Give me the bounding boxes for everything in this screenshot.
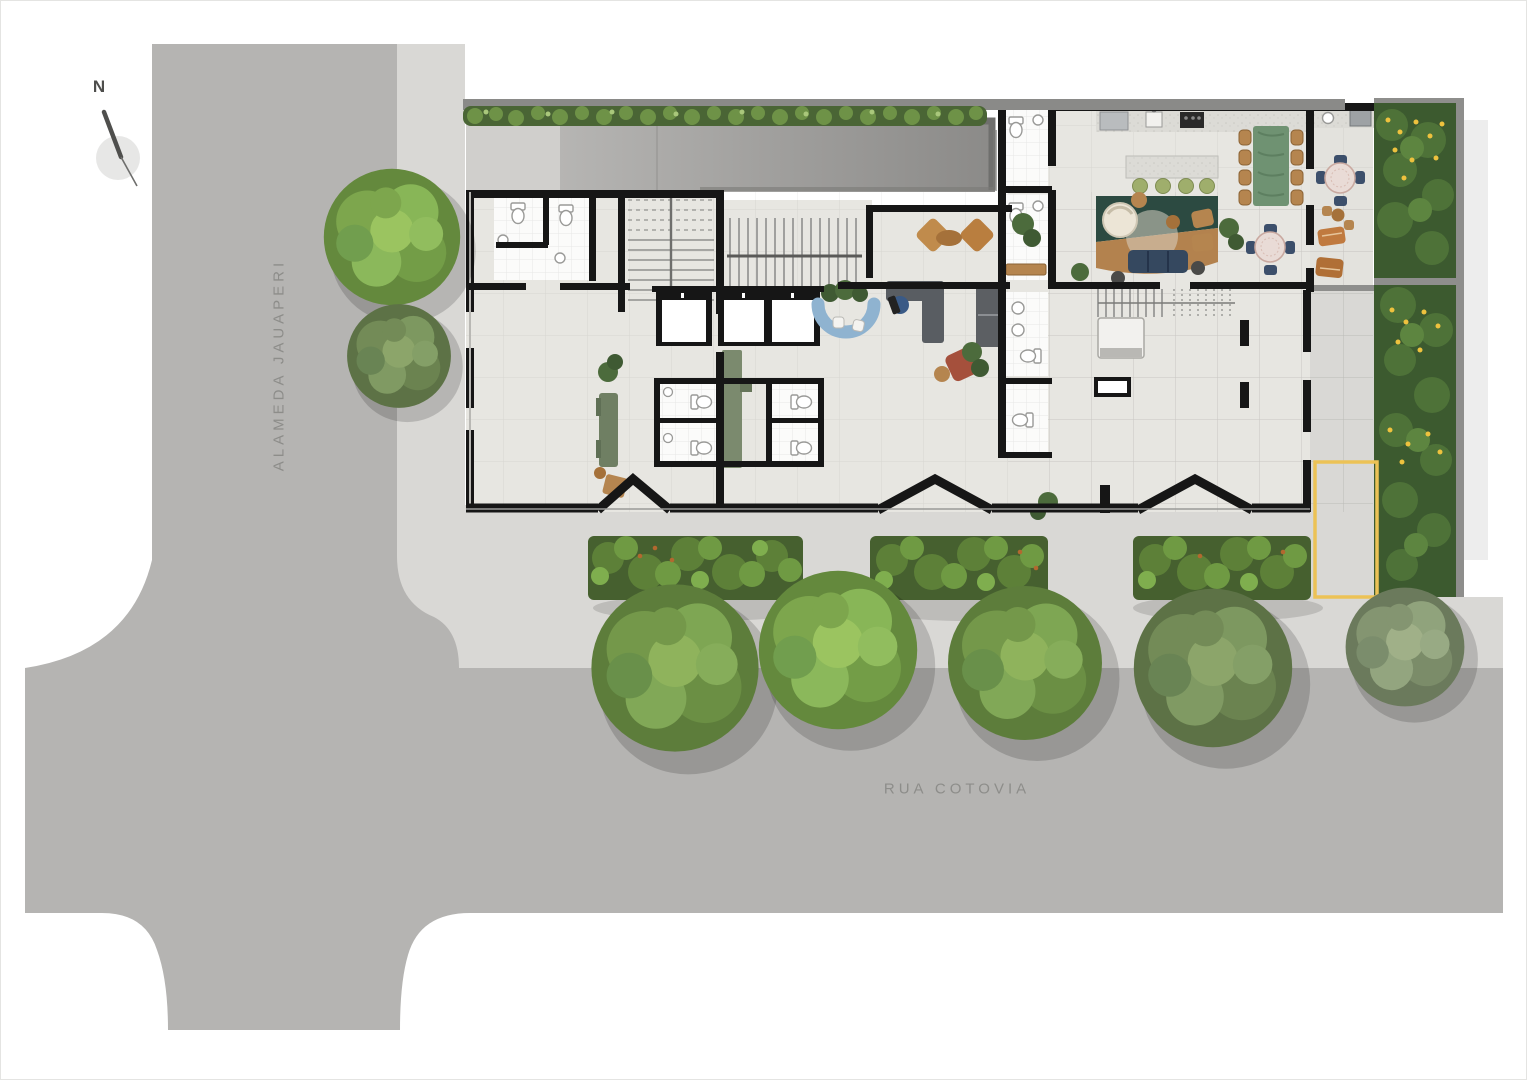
compass-rose	[96, 112, 140, 186]
terrace-sink	[1323, 113, 1334, 124]
lounge-chair-2	[1315, 257, 1344, 279]
garden-east	[1374, 98, 1488, 597]
compass-north-label: N	[93, 77, 105, 97]
grill	[1350, 110, 1371, 126]
elevator-2	[718, 292, 770, 346]
compass-circle	[96, 136, 140, 180]
floor-plan-drawing	[0, 0, 1527, 1080]
coffee-table-oval	[936, 230, 962, 246]
elevator-3	[766, 292, 820, 346]
elevator-1	[656, 292, 712, 346]
street-label-alameda-jauaperi: ALAMEDA JAUAPERI	[271, 259, 288, 471]
street-label-rua-cotovia: RUA COTOVIA	[884, 781, 1030, 798]
kitchen-island	[1126, 156, 1218, 178]
side-table	[1332, 209, 1345, 222]
garage-ramp	[560, 118, 995, 192]
hall-table	[1096, 379, 1129, 395]
navy-sofa	[1128, 250, 1188, 273]
stove	[1180, 112, 1204, 128]
elevator-bank	[656, 292, 820, 346]
wood-bench	[1006, 264, 1046, 275]
site-plan-canvas: N ALAMEDA JAUAPERI RUA COTOVIA	[0, 0, 1527, 1080]
